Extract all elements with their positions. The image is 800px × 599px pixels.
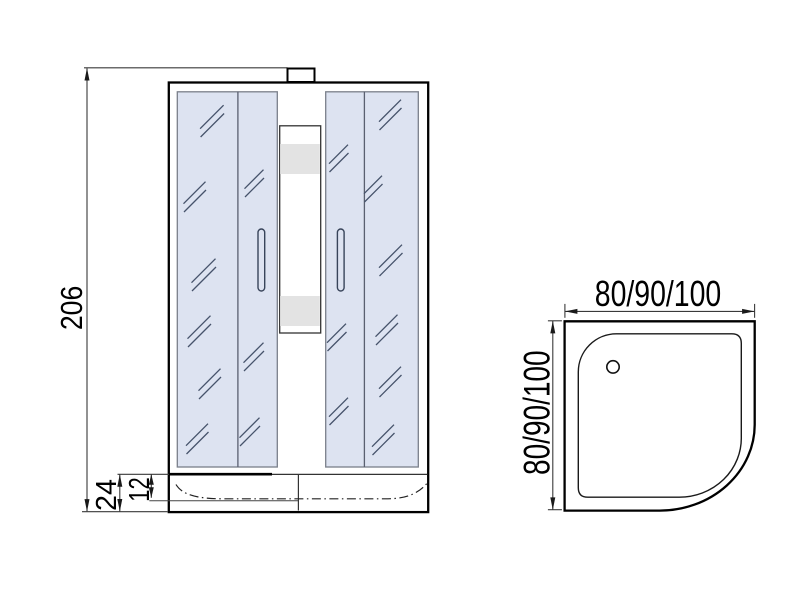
svg-text:24: 24 xyxy=(91,479,123,511)
svg-text:80/90/100: 80/90/100 xyxy=(516,350,558,475)
svg-text:80/90/100: 80/90/100 xyxy=(595,273,722,314)
svg-text:206: 206 xyxy=(55,286,89,331)
svg-text:12: 12 xyxy=(124,477,156,502)
